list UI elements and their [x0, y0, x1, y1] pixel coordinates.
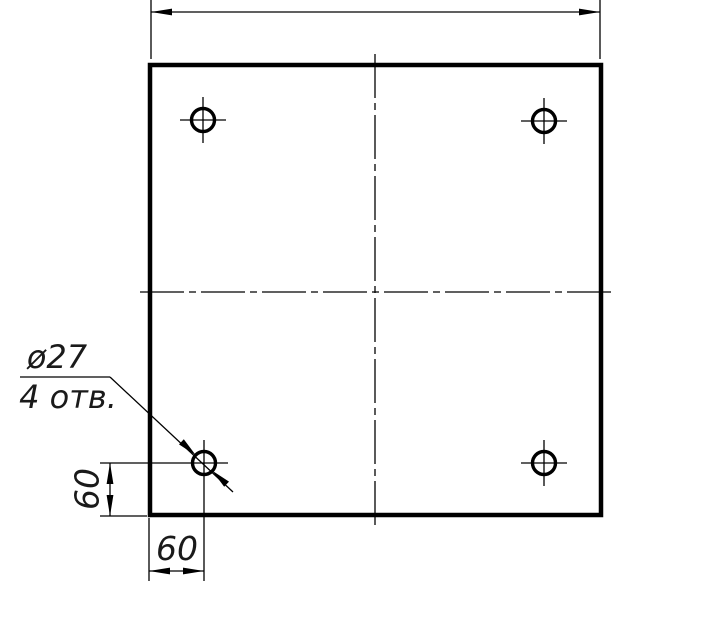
callout-diameter-label: ø27 [26, 338, 88, 376]
bottom-dim-arrowhead-left [149, 568, 170, 575]
left-dim-arrowhead-top [107, 463, 114, 484]
left-dim-arrowhead-bottom [107, 495, 114, 516]
callout-arrowhead-lower [212, 471, 229, 487]
drawing-sheet: 60 60 ø27 4 отв. [0, 0, 713, 631]
top-dim-arrowhead-left [151, 9, 172, 16]
callout-count-label: 4 отв. [19, 378, 117, 416]
left-dim-value: 60 [68, 468, 107, 510]
callout-leader-diagonal [110, 377, 233, 492]
bottom-dim-value: 60 [156, 529, 198, 568]
bottom-dim-arrowhead-right [183, 568, 204, 575]
callout-arrowhead-upper [179, 439, 196, 455]
engineering-drawing: 60 60 ø27 4 отв. [0, 0, 713, 631]
top-dim-arrowhead-right [579, 9, 600, 16]
